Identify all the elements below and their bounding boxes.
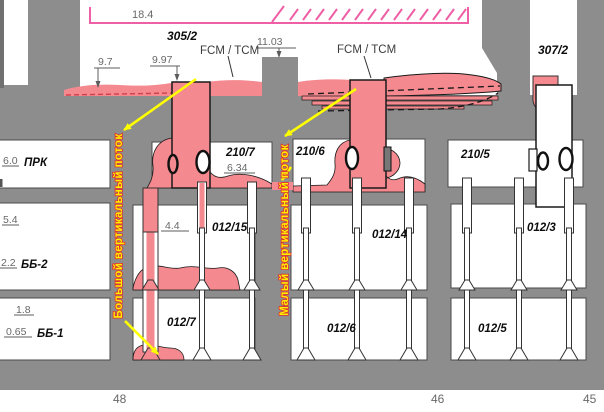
collar-shaftmid <box>346 147 358 169</box>
axis-48: 48 <box>113 392 127 406</box>
label-210-6: 210/6 <box>295 146 325 158</box>
label-prk: ПРК <box>24 157 48 169</box>
dim-6-0: 6.0 <box>3 155 18 167</box>
roof-band-mid2 <box>298 79 352 96</box>
diagram-canvas: 18.4 11.03 9.7 9.97 6.34 4.4 305/2 307/2… <box>0 0 604 412</box>
dim-11-03: 11.03 <box>257 36 283 48</box>
label-210-7: 210/7 <box>225 147 255 159</box>
label-012-5: 012/5 <box>478 323 507 335</box>
shaft-mid-pink <box>350 80 386 188</box>
axis-46: 46 <box>431 392 445 406</box>
roof-band-right <box>384 73 501 96</box>
bottom-strip <box>0 390 604 412</box>
dim-0-65: 0.65 <box>6 326 27 338</box>
shaft-307-bracket <box>529 149 537 171</box>
collar-shaft307-right <box>560 148 573 170</box>
roof-band-mid1 <box>206 80 262 96</box>
collar-shaft307-left <box>538 153 548 170</box>
pillar-mid <box>262 57 298 97</box>
pillar-top-left <box>28 0 80 96</box>
dim-9-7: 9.7 <box>98 56 113 68</box>
label-fcm-right: FCM / TCM <box>337 44 396 56</box>
collar-shaft305-right <box>197 151 210 173</box>
pillar-top-right <box>577 0 604 96</box>
label-big-vertical-flow: Большой вертикальный поток <box>113 133 125 318</box>
dim-5-4: 5.4 <box>3 214 18 226</box>
left-edge-line <box>0 0 4 88</box>
label-012-3: 012/3 <box>527 222 556 234</box>
label-012-7: 012/7 <box>167 317 196 329</box>
label-small-vertical-flow: Малый вертикальный поток <box>279 144 291 316</box>
axis-45: 45 <box>583 392 597 406</box>
dim-2-2: 2.2 <box>1 257 16 269</box>
dim-1-8: 1.8 <box>16 304 31 316</box>
label-bb-1: ББ-1 <box>37 328 64 340</box>
label-fcm-left: FCM / TCM <box>200 45 259 57</box>
label-307-2: 307/2 <box>538 43 568 57</box>
dim-9-97: 9.97 <box>152 54 173 66</box>
mine-cross-section-diagram: 18.4 11.03 9.7 9.97 6.34 4.4 305/2 307/2… <box>0 0 604 412</box>
label-012-15: 012/15 <box>212 222 248 234</box>
left-tick <box>0 179 3 187</box>
dim-4-4: 4.4 <box>165 220 180 232</box>
collar-shaft305-left <box>169 155 178 173</box>
label-305-2: 305/2 <box>167 29 197 43</box>
borehole-1-flooded <box>141 188 160 360</box>
flow-stripe-1 <box>302 96 498 100</box>
label-012-14: 012/14 <box>372 229 408 241</box>
label-012-6: 012/6 <box>327 323 356 335</box>
shaft-mid-plug <box>384 147 391 171</box>
dim-18-4: 18.4 <box>132 9 153 21</box>
label-210-5: 210/5 <box>460 149 490 161</box>
dim-6-34: 6.34 <box>227 162 248 174</box>
label-bb-2: ББ-2 <box>21 259 48 271</box>
